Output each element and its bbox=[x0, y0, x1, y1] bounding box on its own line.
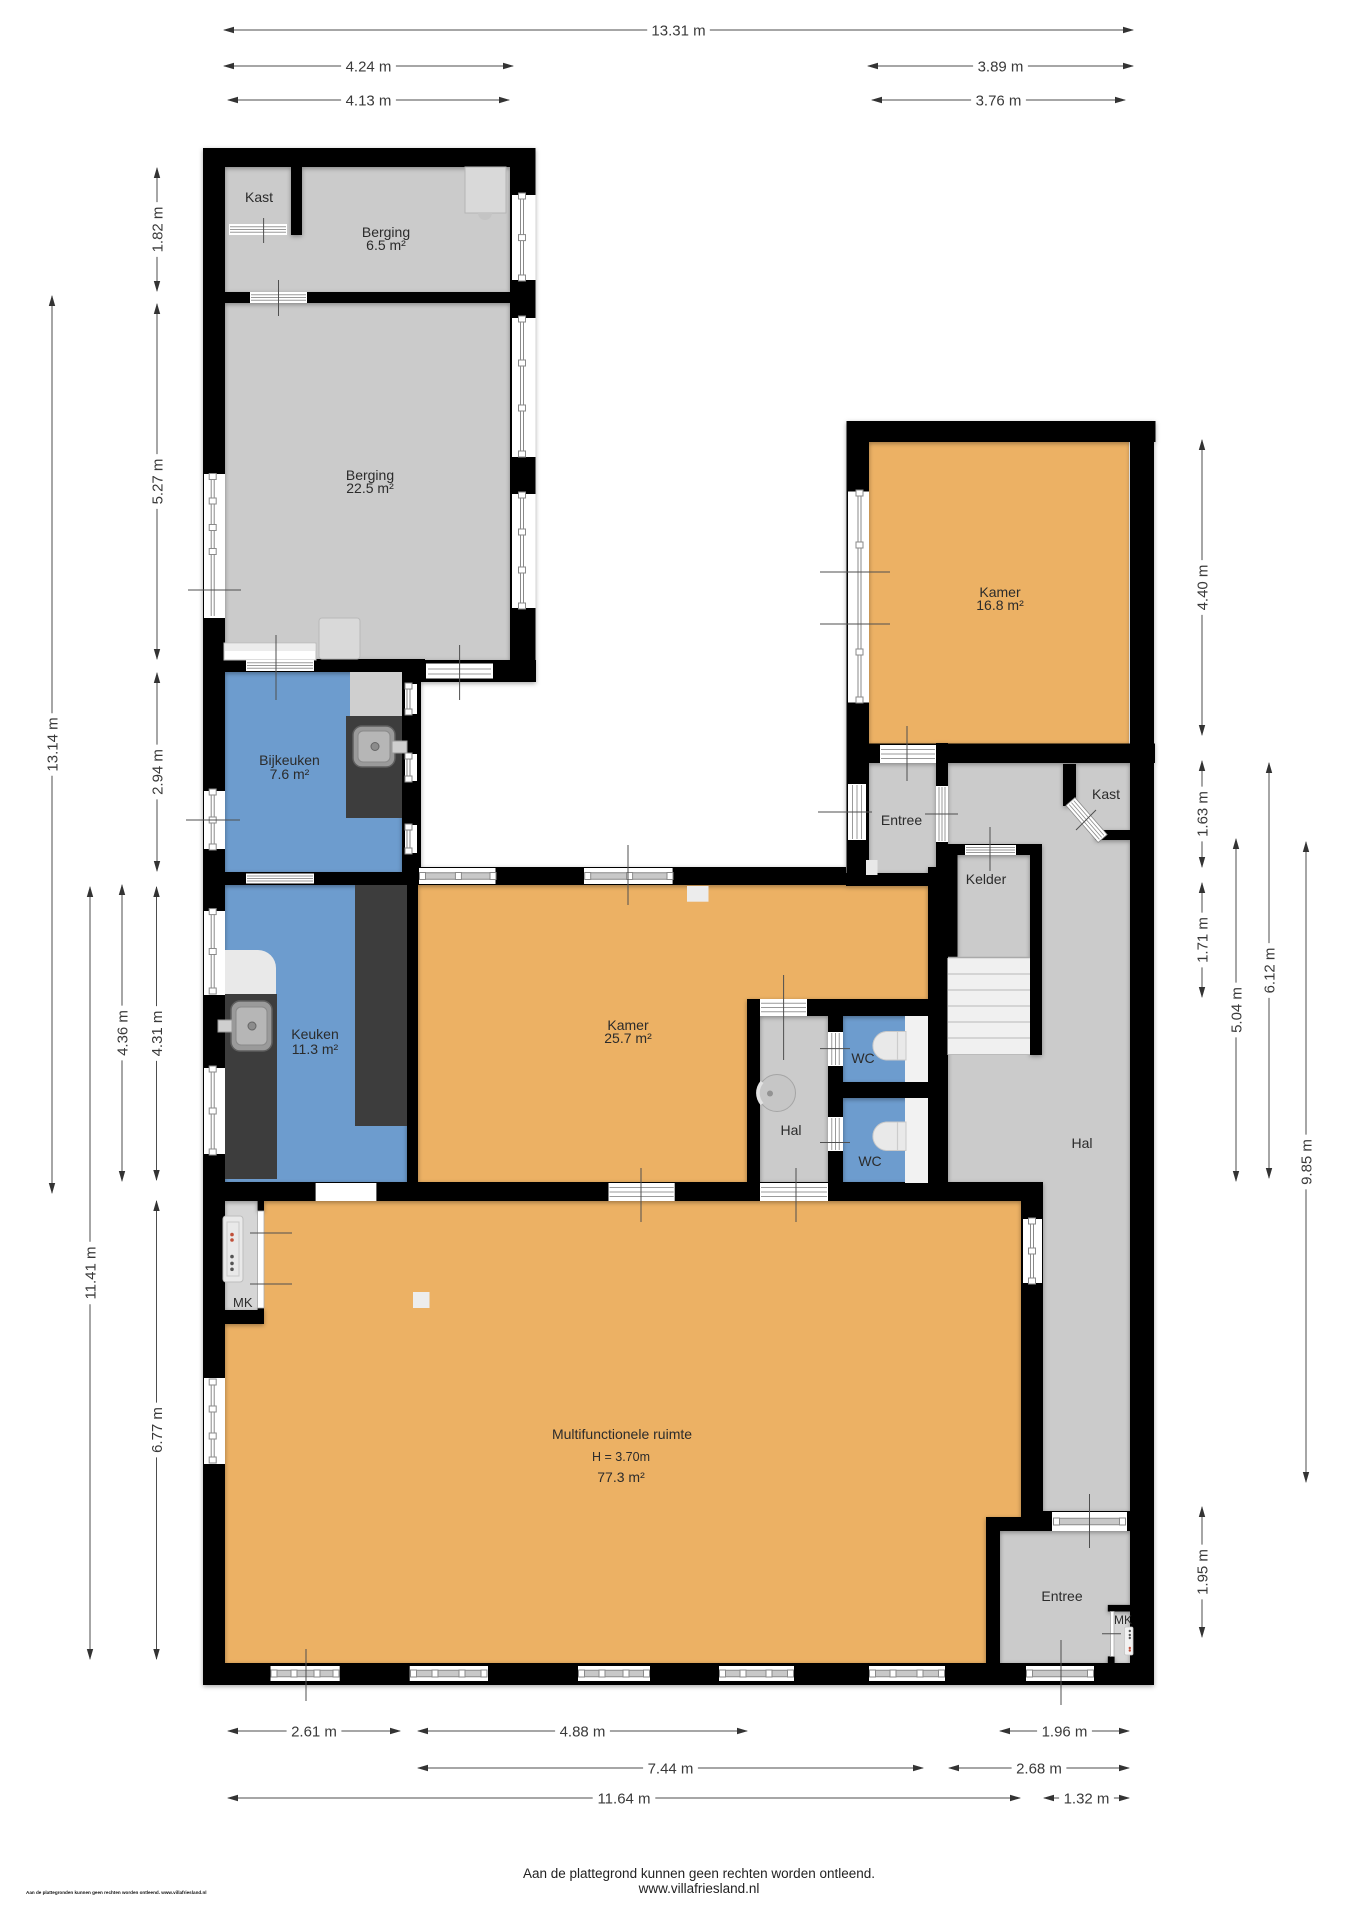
svg-text:H = 3.70m: H = 3.70m bbox=[592, 1450, 650, 1464]
svg-text:4.36 m: 4.36 m bbox=[114, 1010, 131, 1056]
svg-text:5.04 m: 5.04 m bbox=[1228, 987, 1245, 1033]
svg-text:11.64 m: 11.64 m bbox=[597, 1790, 650, 1807]
svg-text:13.31 m: 13.31 m bbox=[651, 22, 705, 39]
svg-text:22.5 m²: 22.5 m² bbox=[346, 480, 394, 496]
svg-text:4.24 m: 4.24 m bbox=[346, 58, 392, 75]
svg-text:WC: WC bbox=[858, 1153, 881, 1169]
svg-text:11.41 m: 11.41 m bbox=[82, 1246, 99, 1299]
svg-text:7.44 m: 7.44 m bbox=[648, 1760, 694, 1777]
svg-text:4.88 m: 4.88 m bbox=[560, 1723, 606, 1740]
svg-text:2.94 m: 2.94 m bbox=[149, 749, 166, 795]
svg-text:Kelder: Kelder bbox=[966, 871, 1007, 887]
svg-text:13.14 m: 13.14 m bbox=[44, 717, 61, 771]
svg-text:6.5 m²: 6.5 m² bbox=[366, 237, 406, 253]
svg-text:1.95 m: 1.95 m bbox=[1194, 1549, 1211, 1595]
svg-text:Entree: Entree bbox=[881, 812, 922, 828]
svg-text:11.3 m²: 11.3 m² bbox=[292, 1041, 339, 1057]
svg-text:Hal: Hal bbox=[1071, 1135, 1092, 1151]
svg-text:Kast: Kast bbox=[245, 189, 273, 205]
svg-text:3.76 m: 3.76 m bbox=[976, 92, 1022, 109]
svg-text:3.89 m: 3.89 m bbox=[978, 58, 1024, 75]
svg-text:4.40 m: 4.40 m bbox=[1194, 565, 1211, 611]
svg-text:Aan de plattegrond kunnen geen: Aan de plattegrond kunnen geen rechten w… bbox=[523, 1866, 875, 1881]
svg-text:25.7 m²: 25.7 m² bbox=[604, 1030, 652, 1046]
svg-text:9.85 m: 9.85 m bbox=[1298, 1139, 1315, 1185]
svg-text:Keuken: Keuken bbox=[291, 1026, 338, 1042]
svg-text:www.villafriesland.nl: www.villafriesland.nl bbox=[638, 1881, 760, 1896]
svg-text:MK: MK bbox=[233, 1295, 253, 1310]
svg-text:WC: WC bbox=[851, 1050, 874, 1066]
svg-text:2.61 m: 2.61 m bbox=[291, 1723, 337, 1740]
svg-text:16.8 m²: 16.8 m² bbox=[976, 597, 1024, 613]
svg-text:1.63 m: 1.63 m bbox=[1194, 791, 1211, 837]
svg-text:77.3 m²: 77.3 m² bbox=[597, 1469, 645, 1485]
svg-text:4.31 m: 4.31 m bbox=[149, 1011, 166, 1057]
svg-text:Multifunctionele ruimte: Multifunctionele ruimte bbox=[552, 1426, 692, 1442]
svg-text:MK: MK bbox=[1114, 1613, 1132, 1627]
svg-text:1.32 m: 1.32 m bbox=[1064, 1790, 1110, 1807]
svg-text:4.13 m: 4.13 m bbox=[346, 92, 392, 109]
svg-text:Entree: Entree bbox=[1041, 1588, 1082, 1604]
svg-text:Aan de plattegronden kunnen ge: Aan de plattegronden kunnen geen rechten… bbox=[26, 1890, 207, 1895]
svg-text:1.96 m: 1.96 m bbox=[1042, 1723, 1088, 1740]
svg-text:6.12 m: 6.12 m bbox=[1261, 948, 1278, 994]
svg-text:Hal: Hal bbox=[780, 1122, 801, 1138]
svg-text:1.82 m: 1.82 m bbox=[149, 207, 166, 253]
svg-text:1.71 m: 1.71 m bbox=[1194, 917, 1211, 963]
svg-text:7.6 m²: 7.6 m² bbox=[270, 766, 310, 782]
svg-text:6.77 m: 6.77 m bbox=[149, 1407, 166, 1453]
svg-text:5.27 m: 5.27 m bbox=[149, 459, 166, 505]
svg-text:Kast: Kast bbox=[1092, 786, 1120, 802]
svg-text:2.68 m: 2.68 m bbox=[1016, 1760, 1062, 1777]
